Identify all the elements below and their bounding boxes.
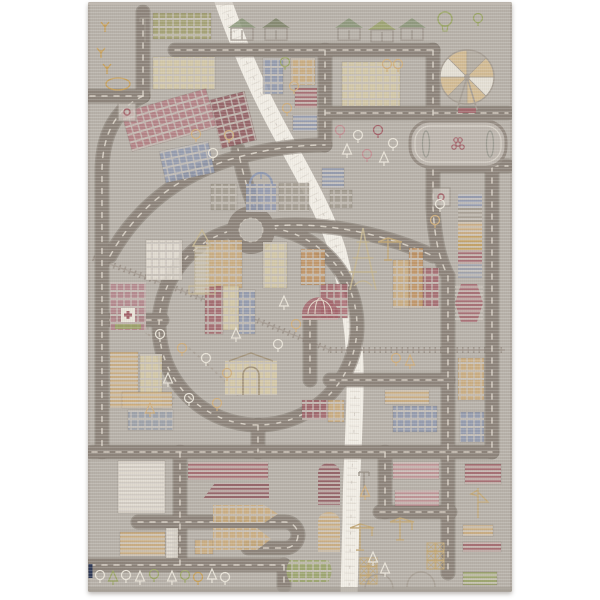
building: [209, 91, 256, 148]
building: [153, 13, 211, 39]
building: [295, 88, 317, 108]
landmark-hangar: [407, 572, 435, 587]
building: [195, 540, 213, 554]
tree-icon: [406, 355, 415, 369]
brand-tag: [89, 564, 93, 578]
building: [463, 572, 497, 585]
tree-icon: [97, 48, 105, 58]
building: [393, 406, 437, 432]
landmark-ferris: [440, 50, 494, 113]
tree-icon: [280, 296, 289, 310]
landmark-sign: [432, 188, 450, 206]
building: [146, 240, 182, 280]
house: [368, 20, 396, 42]
building: [342, 62, 400, 106]
tree-icon: [336, 126, 345, 139]
house: [398, 18, 426, 40]
landmark-sailboat: [471, 488, 488, 518]
building: [118, 461, 165, 513]
building: [120, 532, 165, 556]
landmark-gboat: [287, 560, 332, 582]
tree-icon: [361, 486, 370, 500]
building: [211, 184, 237, 210]
landmark-wedge: [203, 483, 269, 499]
building: [279, 183, 309, 211]
building: [322, 168, 344, 188]
rug-artwork: [88, 2, 512, 592]
tree-icon: [109, 571, 118, 585]
tree-icon: [283, 104, 292, 117]
tree-icon: [106, 78, 130, 90]
landmark-stadium: [410, 121, 506, 167]
building: [393, 462, 439, 479]
tree-icon: [178, 344, 187, 357]
building: [465, 464, 501, 484]
tree-icon: [363, 150, 372, 163]
building: [263, 242, 287, 288]
landmark-vboat: [318, 512, 340, 552]
landmark-stack: [458, 194, 482, 278]
building: [166, 528, 178, 558]
tree-icon: [354, 131, 363, 144]
building: [223, 286, 239, 330]
building: [328, 400, 344, 422]
building: [301, 249, 325, 285]
tree-icon: [221, 573, 230, 586]
landmark-crane: [390, 518, 414, 540]
building: [463, 542, 501, 552]
landmark-church: [246, 173, 276, 212]
landmark-vboat: [318, 463, 340, 505]
tree-icon: [194, 573, 203, 586]
building: [239, 290, 255, 334]
house: [262, 18, 290, 40]
landmark-hospital: [110, 282, 146, 330]
tree-icon: [380, 152, 389, 166]
building: [385, 390, 429, 404]
play-rug: [88, 2, 512, 592]
building: [409, 248, 423, 308]
tree-icon: [103, 64, 111, 74]
tree-icon: [389, 139, 398, 152]
building: [330, 190, 352, 208]
tree-icon: [343, 144, 352, 158]
building: [393, 260, 409, 308]
building: [463, 525, 493, 536]
landmark-sign: [118, 103, 136, 121]
building: [188, 462, 268, 480]
tree-icon: [292, 320, 301, 333]
building: [395, 490, 439, 506]
building: [423, 268, 439, 308]
tree-icon: [136, 571, 145, 585]
building: [206, 240, 242, 288]
building: [302, 400, 328, 420]
landmark-balloon: [438, 12, 452, 31]
tree-icon: [374, 126, 383, 139]
landmark-museum: [225, 353, 277, 395]
tree-icon: [474, 14, 483, 27]
tree-icon: [168, 571, 177, 585]
tree-icon: [392, 354, 401, 367]
building: [458, 358, 484, 400]
building: [263, 58, 283, 94]
landmark-hex: [455, 284, 483, 322]
building: [293, 115, 317, 131]
house: [335, 18, 363, 40]
building: [460, 412, 484, 442]
tree-icon: [369, 552, 378, 566]
building: [122, 392, 172, 408]
tree-icon: [101, 22, 109, 32]
product-photo-canvas: [0, 0, 600, 600]
tree-icon: [274, 340, 283, 353]
building: [153, 57, 215, 89]
